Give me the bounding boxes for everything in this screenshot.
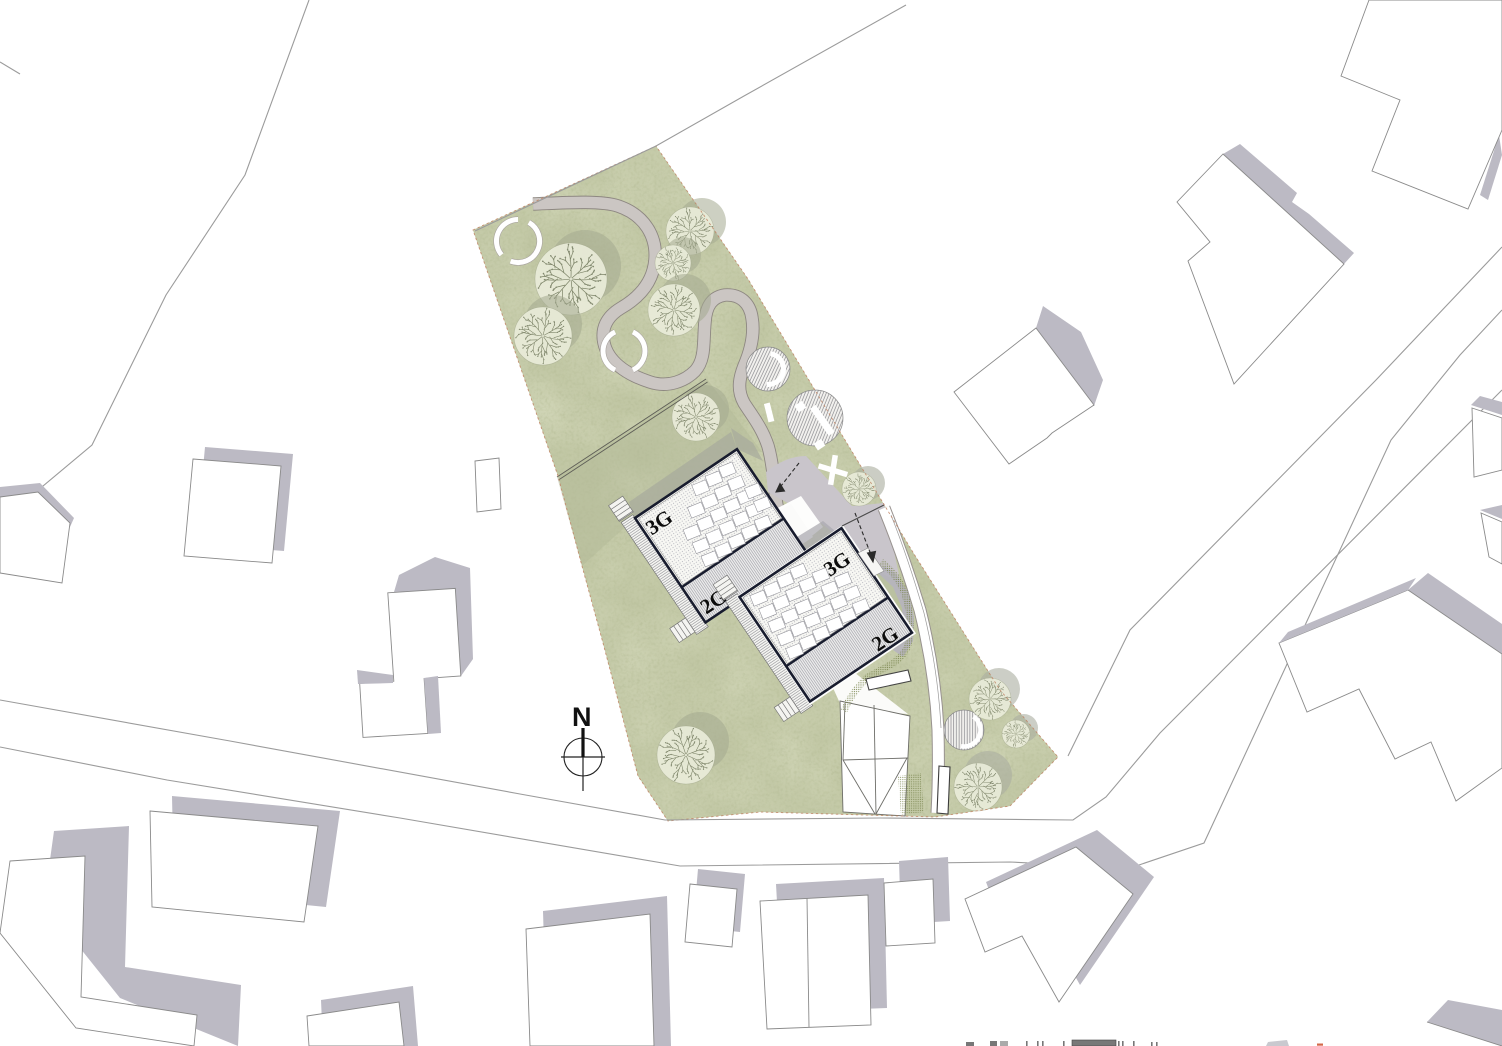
svg-text:N: N bbox=[572, 702, 592, 732]
